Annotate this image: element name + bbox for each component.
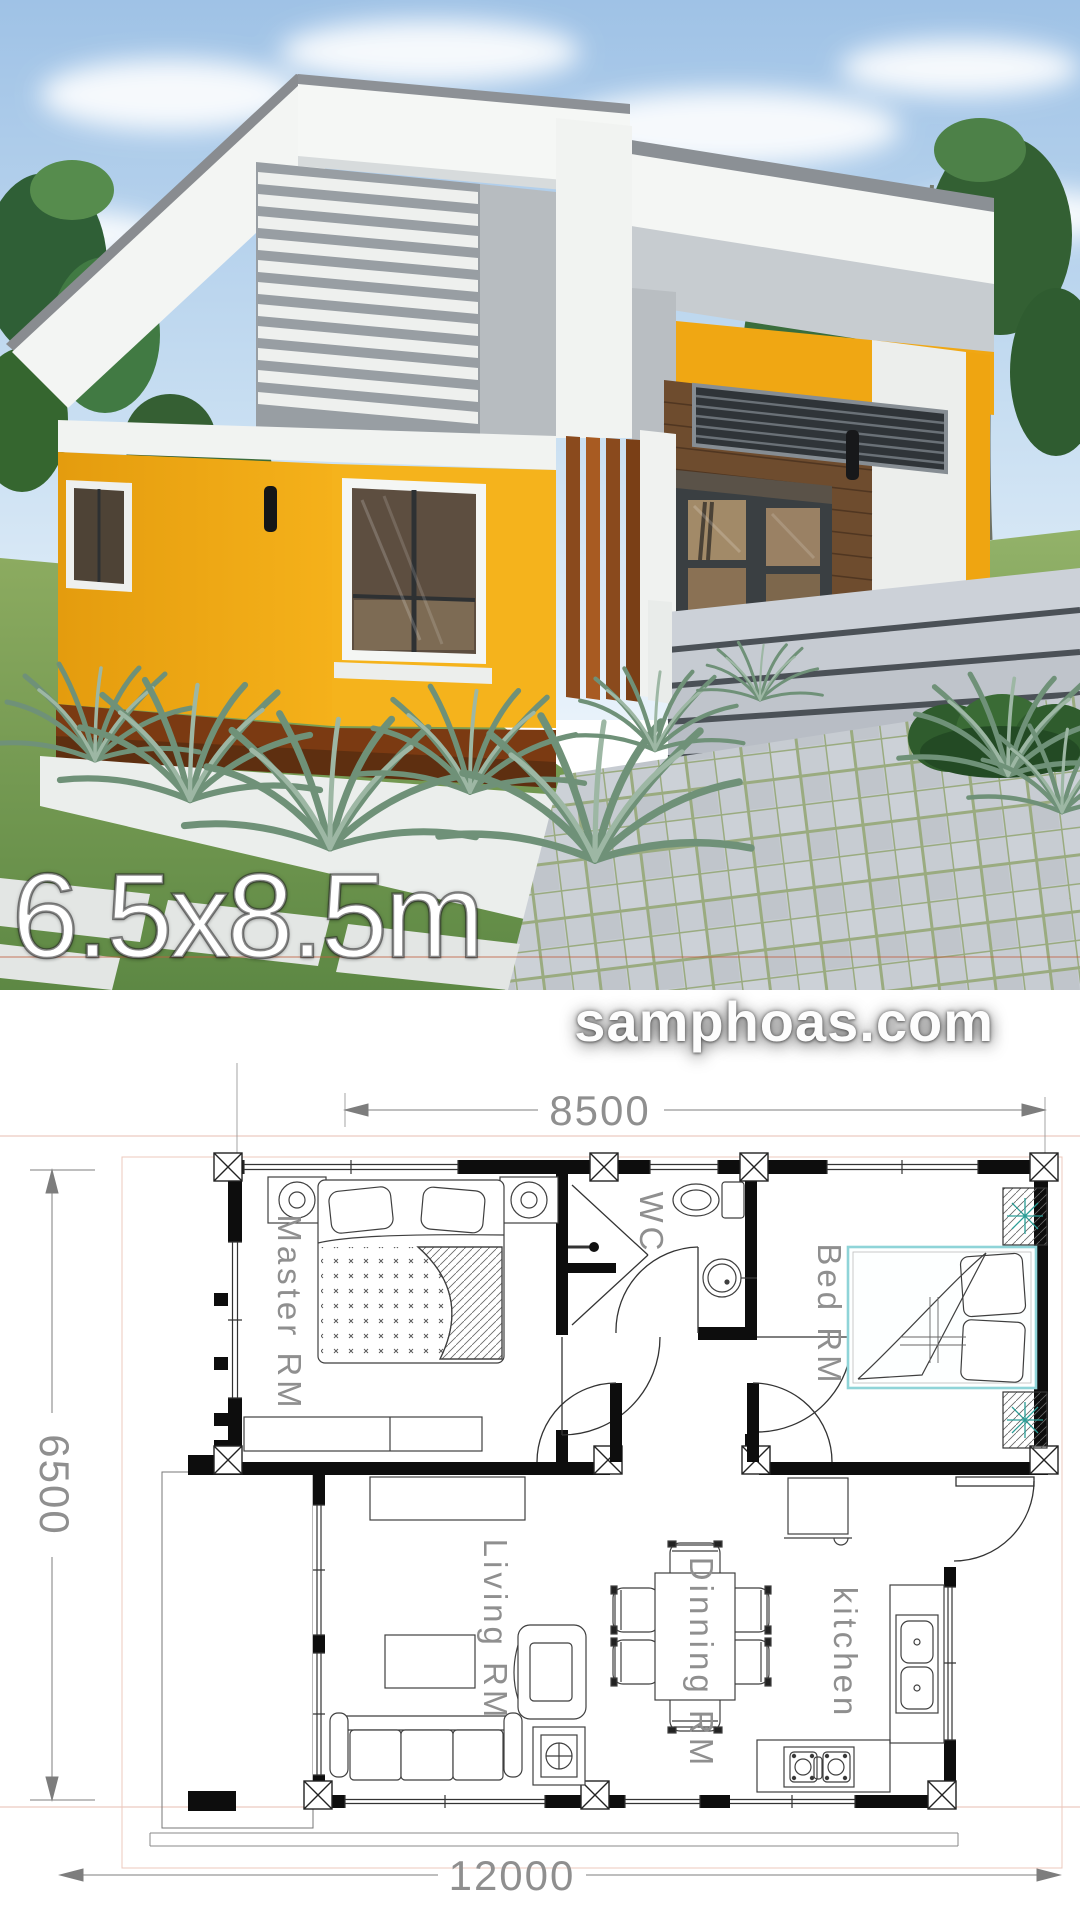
sofa — [330, 1713, 522, 1780]
coffee-table — [385, 1635, 475, 1688]
hall-double-doors — [537, 1383, 832, 1462]
tv-cabinet — [370, 1477, 525, 1520]
plant-box — [1003, 1188, 1047, 1245]
fridge — [784, 1478, 852, 1545]
armchair — [514, 1625, 586, 1719]
toilet — [673, 1182, 744, 1218]
page: 6.5x8.5m samphoas.com — [0, 0, 1080, 1920]
label-kitchen: kitchen — [827, 1587, 864, 1720]
entrance-door — [954, 1477, 1034, 1561]
plant-box — [1003, 1392, 1047, 1448]
kitchen-sink — [896, 1615, 938, 1713]
master-bed — [318, 1180, 504, 1363]
wc-door — [616, 1247, 698, 1333]
bedroom2-furniture — [848, 1188, 1047, 1448]
size-label: 6.5x8.5m — [12, 856, 482, 976]
bed2 — [848, 1247, 1036, 1388]
side-table — [533, 1727, 585, 1785]
wardrobe — [244, 1417, 482, 1451]
label-wc: WC — [633, 1192, 670, 1255]
dining-chair — [611, 1638, 659, 1686]
kitchen-counter-right — [890, 1585, 944, 1743]
kitchen-counter-bottom — [757, 1740, 890, 1792]
label-living-rm: Living RM — [477, 1539, 514, 1722]
gray-wall-panel — [480, 184, 556, 438]
nightstand — [500, 1177, 558, 1223]
living-room-furniture — [330, 1477, 586, 1785]
floor-plan: 8500 6500 12000 — [0, 985, 1080, 1920]
wall-sconce-entry — [846, 430, 859, 480]
dim-top-text: 8500 — [549, 1087, 650, 1134]
wc-fixtures — [673, 1182, 757, 1297]
house-render-art — [0, 0, 1080, 990]
label-bed-rm: Bed RM — [811, 1243, 848, 1386]
louver-slat-panel — [256, 162, 480, 440]
small-window — [66, 480, 132, 592]
wall-sconce-left — [264, 486, 277, 532]
dim-bottom-text: 12000 — [449, 1852, 576, 1899]
house-render-photo: 6.5x8.5m — [0, 0, 1080, 990]
floor-plan-drawing: 8500 6500 12000 — [0, 985, 1080, 1920]
label-dinning-rm: Dinning RM — [683, 1557, 720, 1769]
dining-chair — [611, 1586, 659, 1634]
step-cheek-wall — [648, 600, 672, 704]
label-master-rm: Master RM — [271, 1214, 308, 1411]
dimension-top — [345, 1104, 1045, 1116]
dim-left-text: 6500 — [31, 1434, 78, 1535]
big-window — [334, 478, 492, 684]
white-fascia-column — [556, 118, 632, 438]
